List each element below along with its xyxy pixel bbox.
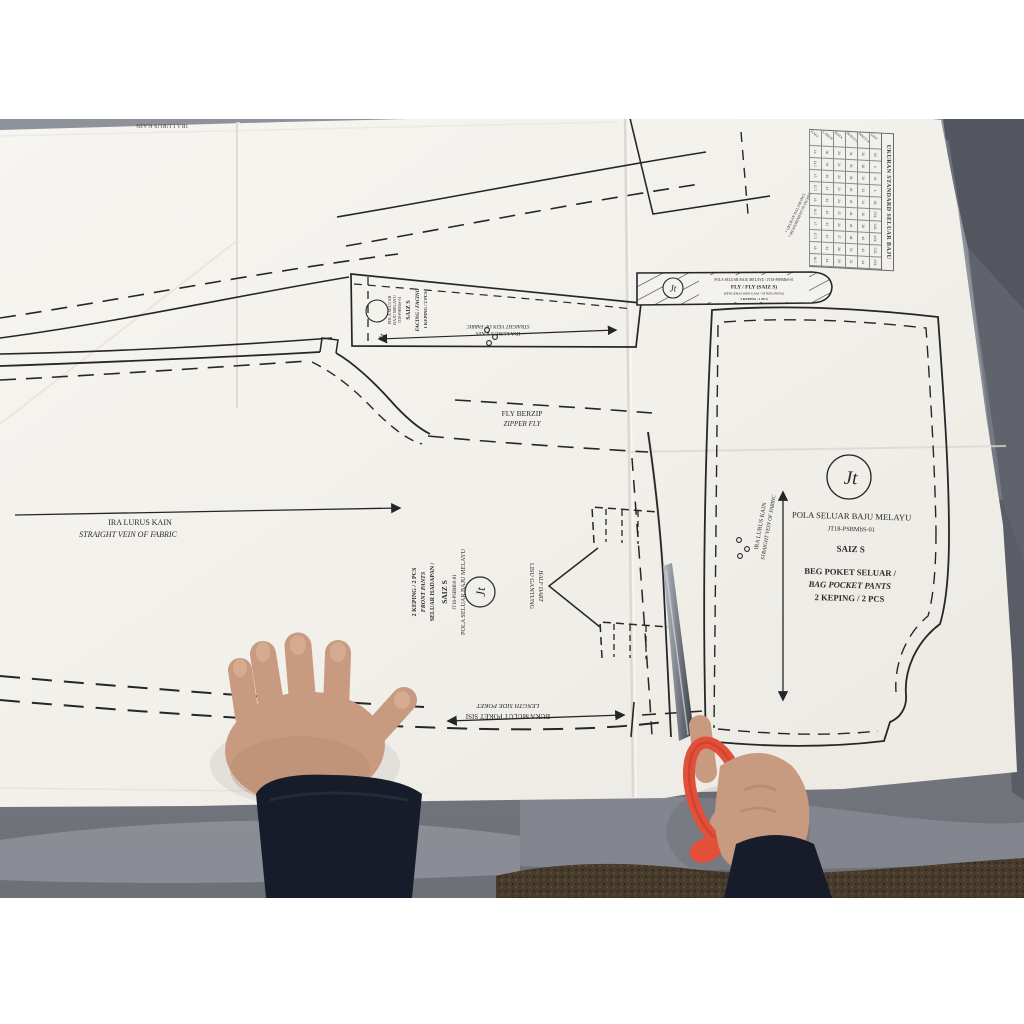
size-chart-header-cell: LABUH (821, 130, 833, 147)
size-chart-value-cell: 43 (821, 230, 833, 243)
size-chart-value-cell: 42 (821, 194, 833, 207)
size-chart-value-cell: 23 (833, 183, 845, 196)
fly-name: FLY / FLY (SAIZ S) (731, 284, 777, 291)
size-chart-value-cell: 32 (857, 184, 869, 197)
facing-size: SAIZ S (405, 300, 412, 320)
facing-qty: 1 KEPING / 2 PCS (423, 291, 428, 329)
dart-en: HALF DART (537, 569, 543, 602)
size-chart-header-cell: PUNGGUNG (845, 132, 857, 149)
front-code: JT18-PSBMbS-01 (453, 574, 458, 610)
size-chart-row: PEHA20212223242526272829 (833, 131, 845, 268)
size-chart-value-cell: 52 (845, 256, 857, 269)
white-bar-top (0, 0, 1024, 119)
zipper-my: FLY BERZIP (502, 409, 543, 418)
size-chart-value-cell: 44 (857, 256, 869, 269)
size-chart-value-cell: 2XL (869, 209, 881, 222)
size-chart-header-cell: SAIZ (869, 133, 881, 150)
facing-grain-en: STRAIGHT VEIN OF FABRIC (466, 323, 530, 329)
front-size: SAIZ S (440, 580, 449, 604)
size-chart-value-cell: 14 (809, 146, 821, 159)
pocket-my: BUKA MULUT POKET SISI (465, 712, 550, 720)
fly-header: POLA SELUAR BAJU MELAYU / JT18-PSBMbS-01 (714, 278, 793, 282)
white-bar-bottom (0, 898, 1024, 1024)
size-chart-value-cell: 15 (809, 170, 821, 183)
size-chart-value-cell: 26 (857, 148, 869, 161)
fly-note: (PENGERAS BER-GAM / INTERLINING) (724, 292, 785, 296)
size-chart-value-cell: 44 (821, 242, 833, 255)
size-chart-table: UKURAN STANDARD SELUAR BAJU MELAYU SAIZX… (806, 129, 894, 272)
size-chart-value-cell: 21 (833, 159, 845, 172)
size-chart-value-cell: 20 (833, 147, 845, 160)
size-chart-value-cell: 17 (809, 218, 821, 231)
size-chart-value-cell: 40 (845, 184, 857, 197)
size-chart-value-cell: 40 (821, 170, 833, 183)
size-chart-header-cell: PEHA (833, 131, 845, 148)
size-chart-value-cell: 30 (857, 172, 869, 185)
facing-code: JT18-PSBMbS-01 (398, 297, 402, 324)
size-chart-value-cell: 36 (845, 160, 857, 173)
dart-my: LISU GANTUNG (528, 563, 535, 609)
size-chart-row: KAKI1414.51515.51616.51717.51818.5 (809, 130, 821, 267)
size-chart-row: LABUH38394041424243434444 (821, 130, 833, 267)
size-chart-value-cell: 42 (857, 244, 869, 257)
logo-monogram: Jt (843, 468, 858, 489)
size-chart-value-cell: 42 (845, 196, 857, 209)
size-chart-value-cell: 41 (821, 182, 833, 195)
size-chart-value-cell: S (869, 161, 881, 174)
size-chart-value-cell: 44 (845, 208, 857, 221)
size-chart-row: PINGGANG26283032343638404244 (857, 132, 869, 269)
size-chart-header-cell: PINGGANG (857, 132, 869, 149)
size-chart-value-cell: M (869, 173, 881, 186)
size-chart-value-cell: 34 (857, 196, 869, 209)
zipper-en: ZIPPER FLY (504, 420, 542, 428)
size-chart-value-cell: 3XL (869, 221, 881, 234)
size-chart-value-cell: 46 (845, 220, 857, 233)
size-chart-value-cell: 48 (845, 232, 857, 245)
pocket-size: SAIZ S (837, 544, 866, 555)
size-chart-value-cell: 38 (845, 172, 857, 185)
size-chart-title: UKURAN STANDARD SELUAR BAJU MELAYU (881, 133, 894, 272)
size-chart-value-cell: 42 (821, 206, 833, 219)
front-brand: POLA SELUAR BAJU MELAYU (460, 549, 467, 635)
size-chart-grid: SAIZXSSMLXL2XL3XL4XL5XL6XLPINGGANG262830… (809, 129, 881, 271)
front-qty: 2 KEPING / 2 PCS (412, 567, 418, 616)
size-chart-row: PUNGGUNG34363840424446485052 (845, 132, 857, 269)
size-chart-value-cell: 28 (857, 160, 869, 173)
size-chart-value-cell: 17.5 (809, 230, 821, 243)
size-chart-row: SAIZXSSMLXL2XL3XL4XL5XL6XL (869, 133, 881, 270)
pocket-code: JT18-PSBMbS-01 (828, 525, 875, 533)
size-chart-value-cell: 25 (833, 207, 845, 220)
size-chart-value-cell: 5XL (869, 245, 881, 258)
fly-qty: 1 KEPING / 1 PCS (740, 297, 768, 301)
size-chart-value-cell: 27 (833, 231, 845, 244)
size-chart-value-cell: 34 (845, 148, 857, 161)
size-chart-value-cell: 40 (857, 232, 869, 245)
size-chart-value-cell: 18.5 (809, 254, 821, 267)
front-name-my: SELUAR HADAPAN / (430, 562, 436, 621)
size-chart-value-cell: L (869, 185, 881, 198)
size-chart-value-cell: 18 (809, 242, 821, 255)
logo-monogram: Jt (378, 333, 388, 340)
size-chart-value-cell: XS (869, 149, 881, 162)
size-chart-value-cell: 6XL (869, 257, 881, 270)
size-chart-value-cell: 4XL (869, 233, 881, 246)
size-chart-value-cell: 16.5 (809, 206, 821, 219)
logo-monogram: Jt (670, 284, 677, 294)
size-chart-header-cell: KAKI (809, 130, 821, 147)
size-chart-value-cell: 29 (833, 255, 845, 268)
facing-name: FACING / FACING (415, 288, 421, 331)
front-name-en: FRONT PANTS (421, 571, 427, 612)
photo-stage: IRA LURUS KAIN Jt POLA SELUAR BAJU MELAY… (0, 0, 1024, 1024)
pocket-en: LENGTH SIDE POKET (476, 702, 540, 709)
size-chart-value-cell: 24 (833, 195, 845, 208)
size-chart-value-cell: 50 (845, 244, 857, 257)
logo-monogram: Jt (473, 587, 488, 597)
top-edge-grain-text: IRA LURUS KAIN (136, 122, 188, 129)
size-chart-value-cell: 22 (833, 171, 845, 184)
grain-left-my: IRA LURUS KAIN (108, 518, 172, 527)
size-chart-value-cell: 44 (821, 254, 833, 267)
size-chart-value-cell: 39 (821, 158, 833, 171)
grain-left-en: STRAIGHT VEIN OF FABRIC (79, 530, 177, 539)
size-chart-value-cell: 16 (809, 194, 821, 207)
size-chart-value-cell: 14.5 (809, 158, 821, 171)
size-chart-value-cell: 15.5 (809, 182, 821, 195)
size-chart-value-cell: 28 (833, 243, 845, 256)
size-chart-value-cell: 38 (857, 220, 869, 233)
pocket-qty: 2 KEPING / 2 PCS (815, 592, 885, 604)
size-chart-value-cell: 26 (833, 219, 845, 232)
size-chart-value-cell: 38 (821, 146, 833, 159)
size-chart-value-cell: 43 (821, 218, 833, 231)
size-chart-value-cell: 36 (857, 208, 869, 221)
facing-grain-my: IRA LURUS KAIN (476, 330, 520, 336)
size-chart-value-cell: XL (869, 197, 881, 210)
facing-brand-2: BAJU MELAYU (392, 294, 397, 325)
